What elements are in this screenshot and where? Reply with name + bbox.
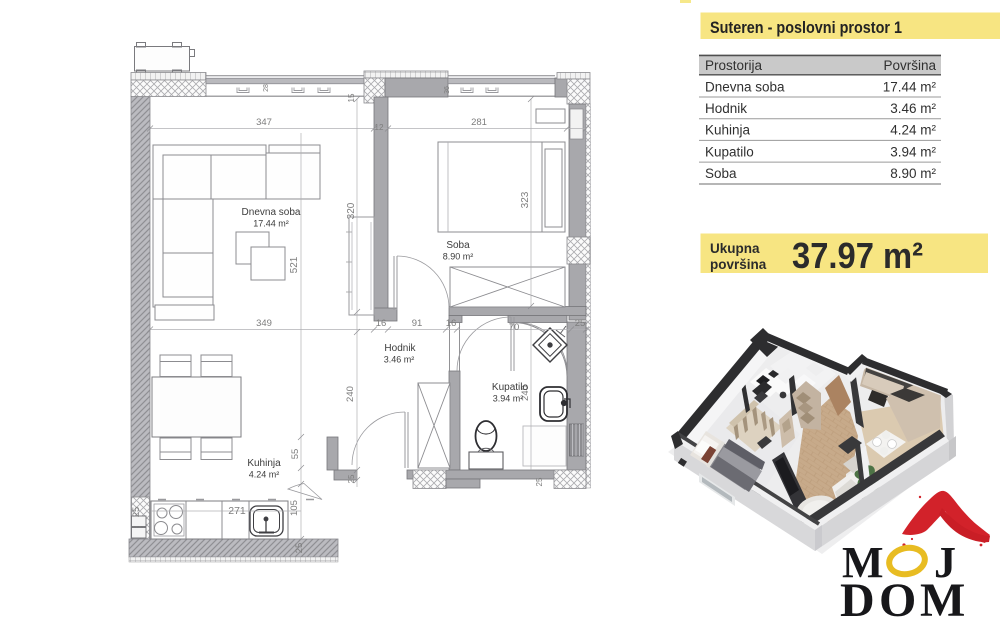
- svg-text:3.46 m²: 3.46 m²: [384, 355, 415, 365]
- svg-text:281: 281: [471, 117, 487, 128]
- svg-text:Soba: Soba: [705, 166, 737, 181]
- svg-text:349: 349: [256, 318, 272, 329]
- svg-text:25: 25: [535, 477, 544, 486]
- svg-text:Kupatilo: Kupatilo: [492, 382, 529, 393]
- svg-text:Prostorija: Prostorija: [705, 58, 763, 73]
- svg-text:105: 105: [289, 500, 300, 516]
- svg-text:323: 323: [520, 191, 531, 208]
- svg-text:D: D: [840, 574, 875, 625]
- svg-text:70: 70: [509, 322, 520, 333]
- svg-text:4.24 m²: 4.24 m²: [890, 123, 936, 138]
- svg-text:M: M: [920, 574, 965, 625]
- svg-text:Hodnik: Hodnik: [384, 343, 416, 354]
- svg-text:28: 28: [263, 84, 270, 92]
- svg-text:Kuhinja: Kuhinja: [705, 123, 751, 138]
- svg-text:Dnevna soba: Dnevna soba: [705, 80, 785, 95]
- svg-text:17.44 m²: 17.44 m²: [883, 80, 937, 95]
- svg-text:površina: površina: [710, 257, 767, 272]
- svg-text:3.94 m²: 3.94 m²: [890, 144, 936, 159]
- svg-text:25: 25: [131, 507, 142, 518]
- svg-text:15: 15: [347, 93, 356, 102]
- svg-text:521: 521: [289, 256, 300, 273]
- svg-text:Površina: Površina: [883, 58, 936, 73]
- svg-text:36: 36: [444, 86, 451, 94]
- svg-text:16: 16: [376, 318, 387, 329]
- svg-text:320: 320: [346, 202, 357, 219]
- svg-text:Kupatilo: Kupatilo: [705, 144, 754, 159]
- svg-text:3.46 m²: 3.46 m²: [890, 101, 936, 116]
- svg-text:Hodnik: Hodnik: [705, 101, 747, 116]
- svg-text:25: 25: [575, 318, 586, 329]
- svg-text:8.90 m²: 8.90 m²: [890, 166, 936, 181]
- svg-text:55: 55: [290, 449, 301, 460]
- svg-text:3.94 m²: 3.94 m²: [493, 394, 524, 404]
- svg-text:17.44 m²: 17.44 m²: [253, 219, 289, 229]
- svg-text:25: 25: [294, 543, 305, 554]
- svg-text:16: 16: [446, 318, 457, 329]
- svg-text:Kuhinja: Kuhinja: [247, 458, 281, 469]
- svg-text:Ukupna: Ukupna: [710, 241, 760, 256]
- svg-text:8.90 m²: 8.90 m²: [443, 252, 474, 262]
- svg-text:25: 25: [347, 474, 356, 483]
- svg-text:4.24 m²: 4.24 m²: [249, 470, 280, 480]
- svg-text:91: 91: [412, 318, 423, 329]
- svg-text:271: 271: [228, 505, 246, 517]
- svg-text:O: O: [879, 574, 916, 625]
- svg-text:12: 12: [375, 123, 384, 132]
- svg-text:Dnevna soba: Dnevna soba: [242, 207, 301, 218]
- svg-text:347: 347: [256, 117, 272, 128]
- svg-text:Suteren - poslovni prostor 1: Suteren - poslovni prostor 1: [710, 19, 902, 37]
- svg-text:37.97 m²: 37.97 m²: [792, 235, 923, 276]
- svg-text:240: 240: [345, 386, 356, 402]
- svg-text:Soba: Soba: [446, 240, 470, 251]
